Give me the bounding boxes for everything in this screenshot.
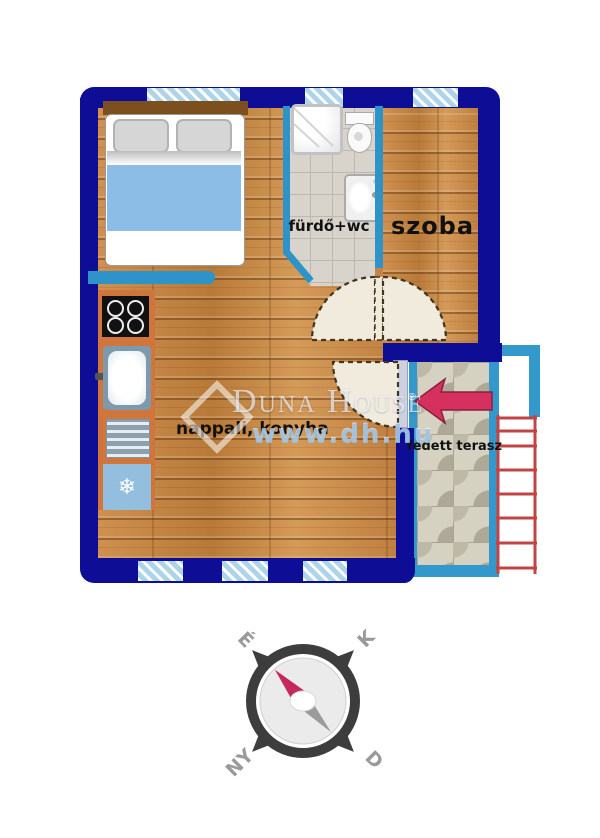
compass-label-west: NY <box>222 745 259 782</box>
bathroom-sink <box>344 174 381 222</box>
watermark-registered-icon: ® <box>407 392 417 403</box>
compass <box>242 640 364 762</box>
compass-ring <box>251 649 355 753</box>
window-opening <box>413 88 458 107</box>
bed-fold <box>107 151 241 165</box>
toilet-bowl-detail <box>354 132 363 141</box>
room-label-bathroom: fürdő+wc <box>283 217 375 235</box>
window-opening <box>138 561 183 581</box>
freezer-icon: ❄ <box>118 475 136 500</box>
needle-south <box>295 693 337 737</box>
room-label-room: szoba <box>385 212 480 240</box>
bed-pillow <box>113 119 169 153</box>
compass-face <box>260 658 346 744</box>
outer-wall-left <box>80 98 98 568</box>
kitchen-sink <box>103 346 151 410</box>
sink-detail <box>373 179 378 184</box>
floor-plan: ❄ <box>0 0 600 838</box>
sink-basin <box>108 351 146 405</box>
shower <box>291 104 343 155</box>
bed-blanket <box>107 165 241 231</box>
watermark-url: www.dh.hu <box>252 420 434 450</box>
cooktop-burner <box>107 300 124 317</box>
compass-pivot <box>290 691 316 711</box>
compass-label-south: D <box>361 747 388 774</box>
compass-label-north: É <box>233 628 258 653</box>
terrace-floor <box>417 362 490 566</box>
sink-tap <box>372 192 378 198</box>
sink-basin <box>349 182 371 213</box>
window-opening <box>222 561 268 581</box>
cooktop-burner <box>107 317 124 334</box>
cooktop-burner <box>127 317 144 334</box>
stairs-railing <box>496 415 537 574</box>
balcony-outline-right <box>529 345 540 417</box>
half-wall <box>88 271 215 284</box>
cooktop <box>102 296 149 337</box>
watermark-brand: Duna House <box>232 383 424 421</box>
outer-wall-right <box>478 100 500 362</box>
fridge: ❄ <box>103 464 151 510</box>
window-opening <box>303 561 347 581</box>
bed-headboard <box>103 101 248 115</box>
needle-north <box>267 663 312 710</box>
terrace-border-bottom <box>409 565 499 577</box>
compass-points <box>242 640 364 762</box>
bed-pillow <box>176 119 232 153</box>
terrace-border-right <box>489 345 499 577</box>
cooktop-burner <box>127 300 144 317</box>
toilet <box>347 123 372 153</box>
dish-drainer <box>106 419 150 458</box>
bed <box>105 114 245 266</box>
compass-label-east: K <box>353 626 379 652</box>
compass-needle <box>267 663 338 739</box>
